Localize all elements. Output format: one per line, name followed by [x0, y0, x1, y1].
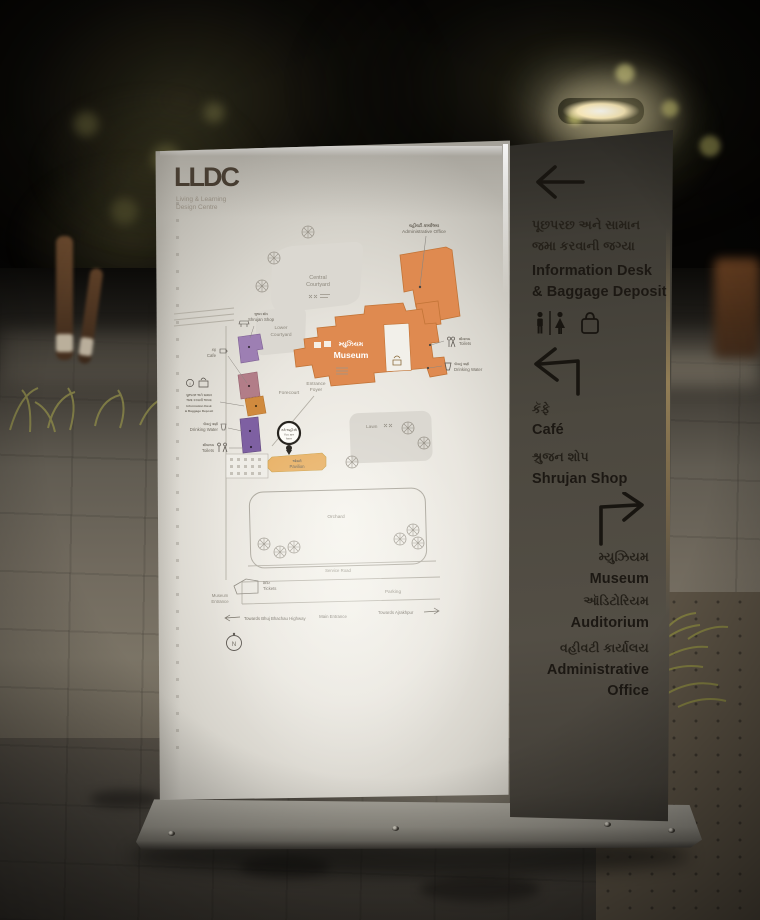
- central-courtyard-label-2: Courtyard: [306, 282, 330, 288]
- arrow-turn-right-icon: [593, 492, 649, 546]
- auditorium-label-gu: ઑડિટોરિયમ: [519, 594, 649, 609]
- you-are-here-marker: તમે અહીં છો You are here: [278, 422, 300, 455]
- info-icon-i: i: [189, 382, 190, 388]
- pavilion-label-gu: ઓસરી: [293, 459, 302, 463]
- info-map-label-en1: Information Desk: [186, 404, 212, 408]
- info-desk-label-gu-2: જમા કરવાની જગ્યા: [532, 239, 635, 254]
- lamp-light: [558, 98, 644, 124]
- towards-ajrakhpur-label: Towards Ajrakhpur: [378, 610, 414, 615]
- site-map: Central Courtyard Lower Courtyard Lawn: [168, 200, 488, 670]
- compass-n: N: [232, 641, 236, 648]
- museum-entrance-label-2: Entrance: [211, 599, 229, 604]
- admin-office-label-gu: વહીવટી કાર્યાલય: [509, 641, 649, 656]
- map-arrow-right: [424, 608, 439, 614]
- restroom-icon: [532, 310, 568, 337]
- shop-map-label-gu: શ્રુજન શોપ: [254, 312, 268, 316]
- yah-label-en2: here: [286, 437, 292, 441]
- water-left-label-en: Drinking Water: [190, 427, 219, 432]
- hatched-plaza: [226, 454, 268, 478]
- compass: N: [227, 633, 242, 651]
- water-right-label-gu: પીવાનું પાણી: [454, 362, 469, 366]
- cafe-cup-icon: [220, 349, 227, 353]
- service-road-label: Service Road: [325, 568, 351, 573]
- pavilion-building: ઓસરી Pavilion: [268, 453, 326, 472]
- museum-map-label-gu: મ્યુઝિયમ: [339, 340, 364, 348]
- tree-trunk-right: [714, 258, 760, 358]
- main-entrance-label: Main Entrance: [319, 614, 347, 619]
- cafe-label-en: Café: [532, 422, 564, 438]
- cafe-label-gu: કૅફે: [532, 402, 550, 417]
- info-desk-label-en-1: Information Desk: [532, 263, 652, 279]
- lldc-logo: LLDC: [174, 162, 238, 193]
- water-cup-icon: [221, 424, 226, 430]
- central-courtyard-label-1: Central: [309, 275, 326, 281]
- admin-office-label-en-2: Office: [509, 683, 649, 699]
- orchard-label: Orchard: [327, 514, 345, 520]
- bolt: [168, 831, 175, 836]
- toilets-building: પીવાનું પાણી Drinking Water શૌચાલય Toile…: [190, 417, 261, 453]
- tickets-label-gu: ટિકિટ: [263, 581, 270, 585]
- tiny-caption-line: [320, 294, 330, 295]
- baggage-icon: [579, 310, 601, 337]
- info-map-label-gu1: પૂછપરછ અને સામાન: [186, 393, 213, 397]
- directory-panel: પૂછપરછ અને સામાન જમા કરવાની જગ્યા Inform…: [505, 130, 673, 824]
- map-arrow-left: [225, 615, 240, 621]
- lawn-area: Lawn: [349, 411, 433, 464]
- yah-pin-icon: [286, 450, 292, 455]
- info-map-label-gu2: જમા કરવાની જગ્યા: [187, 398, 212, 402]
- info-desk-label-gu-1: પૂછપરછ અને સામાન: [532, 218, 640, 233]
- map-panel: LLDC Living & Learning Design Centre Cen…: [152, 138, 510, 800]
- bolt-4: [668, 828, 675, 833]
- lower-courtyard-label-2: Courtyard: [270, 332, 291, 338]
- yah-label-gu: તમે અહીં છો: [281, 428, 297, 432]
- toilets-left-label-en: Toilets: [202, 448, 214, 453]
- info-map-label-en2: & Baggage Deposit: [185, 409, 213, 413]
- arrow-left-icon: [531, 160, 587, 204]
- toilets-left-label-gu: શૌચાલય: [203, 443, 215, 447]
- admin-map-label-gu: વહીવટી કાર્યાલય: [409, 223, 439, 228]
- tiny-caption-line-2: [320, 297, 328, 298]
- bag-small-icon: [199, 378, 208, 387]
- shrujan-shop-label-gu: શ્રુજન શોપ: [532, 450, 589, 465]
- night-photo-scene: પૂછપરછ અને સામાન જમા કરવાની જગ્યા Inform…: [0, 0, 760, 920]
- admin-office-label-en-1: Administrative: [509, 662, 649, 678]
- pavement-stain-3: [90, 790, 160, 808]
- water-left-label-gu: પીવાનું પાણી: [203, 422, 218, 426]
- bottom-direction-labels: Towards Bhuj Bhachau Highway Main Entran…: [225, 608, 439, 621]
- entrance-foyer-label-2: Foyer: [310, 387, 323, 393]
- museum-entrance-label-1: Museum: [212, 593, 229, 598]
- pavilion-label-en: Pavilion: [289, 464, 305, 469]
- shrujan-shop-label-en: Shrujan Shop: [532, 471, 627, 487]
- pavement-stain-2: [420, 876, 540, 902]
- water-right-label-en: Drinking Water: [454, 367, 483, 372]
- shop-map-label-en: Shrujan Shop: [248, 317, 275, 322]
- cafe-map-label-gu: કૅફે: [212, 348, 217, 352]
- towards-highway-label: Towards Bhuj Bhachau Highway: [244, 616, 306, 621]
- cafe-map-label-en: Cafe: [207, 353, 217, 358]
- museum-inner-courtyard: [384, 323, 411, 371]
- tickets-label-en: Tickets: [263, 586, 276, 591]
- museum-lift-icon: [314, 342, 321, 348]
- info-desk-label-en-2: & Baggage Deposit: [532, 284, 667, 300]
- auditorium-label-en: Auditorium: [519, 615, 649, 631]
- entrance-foyer-label-1: Entrance: [306, 381, 326, 387]
- admin-map-label-en: Administrative Office: [402, 229, 446, 235]
- lawn-label: Lawn: [366, 424, 378, 430]
- toilets-right-label-en: Toilets: [459, 341, 471, 346]
- museum-label-en: Museum: [529, 571, 649, 587]
- parking-label: Parking: [385, 589, 402, 595]
- bolt-3: [604, 822, 611, 827]
- forecourt-label: Forecourt: [279, 390, 300, 396]
- museum-bag-icon: [324, 341, 331, 347]
- arrow-turn-left-icon: [527, 342, 589, 396]
- central-courtyard-area: Central Courtyard: [271, 242, 363, 312]
- museum-map-label-en: Museum: [334, 350, 369, 360]
- lower-courtyard-label-1: Lower: [274, 325, 287, 331]
- museum-label-gu: મ્યુઝિયમ: [529, 550, 649, 565]
- bolt-2: [392, 826, 399, 831]
